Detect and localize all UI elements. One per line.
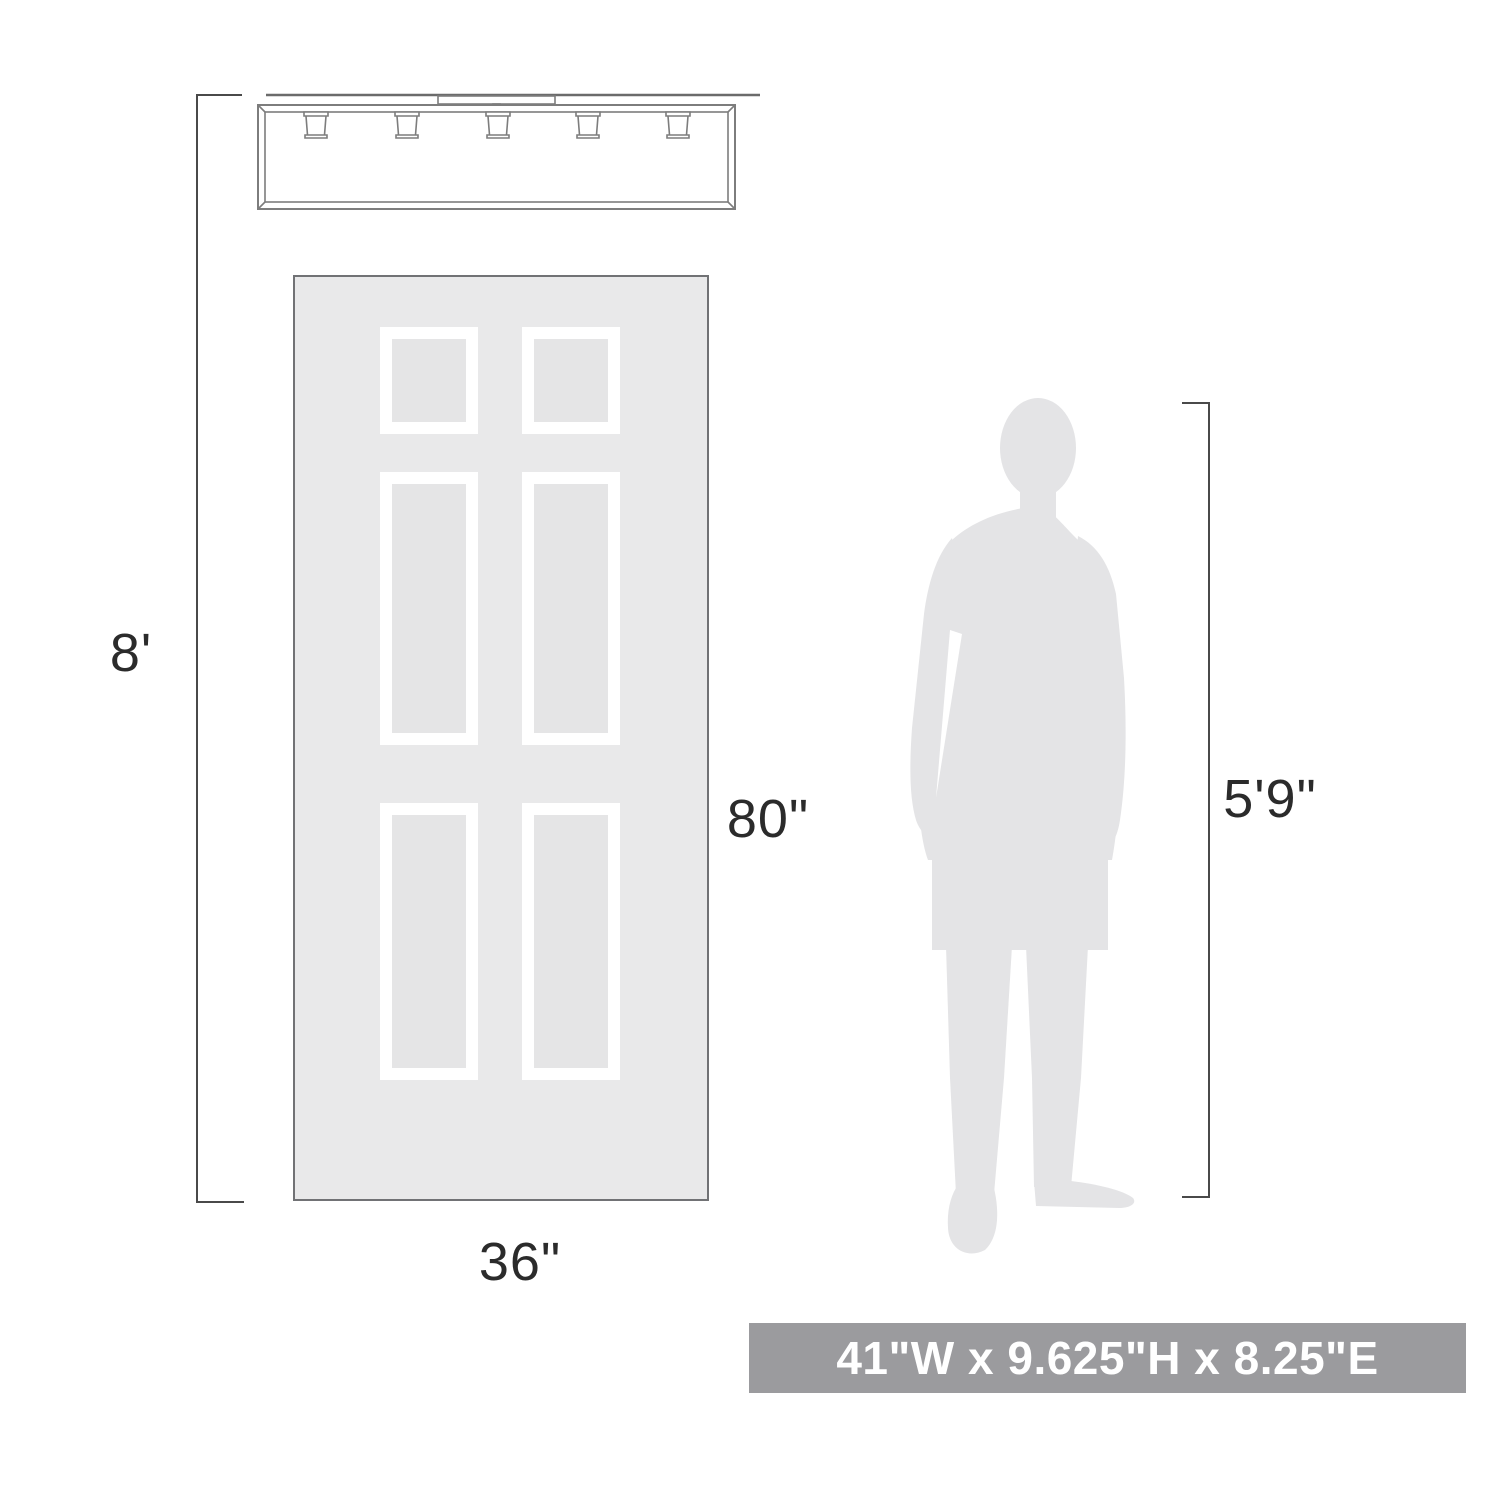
label-door-height: 80" (718, 788, 818, 850)
door-silhouette (293, 275, 709, 1201)
person-height-bottom-tick (1182, 1196, 1210, 1198)
fixture-socket (486, 112, 510, 138)
door-panel-inner (534, 815, 608, 1068)
door-panel (522, 327, 620, 434)
fixture-socket (395, 112, 419, 138)
ceiling-height-top-tick (196, 94, 242, 96)
fixture-canopy (438, 96, 555, 104)
light-fixture-drawing (190, 88, 770, 218)
person-height-top-tick (1182, 402, 1210, 404)
door-panel-inner (534, 484, 608, 733)
ceiling-height-bottom-tick (196, 1201, 244, 1203)
label-person-height: 5'9" (1200, 768, 1340, 830)
door-panel-inner (534, 339, 608, 422)
door-panel-inner (392, 815, 466, 1068)
person-silhouette (880, 398, 1150, 1260)
fixture-socket (304, 112, 328, 138)
door-panel (522, 803, 620, 1080)
label-ceiling-height: 8' (76, 622, 186, 684)
door-panel (380, 327, 478, 434)
fixture-socket (666, 112, 690, 138)
fixture-socket (576, 112, 600, 138)
door-panel (380, 472, 478, 745)
door-panel-inner (392, 339, 466, 422)
dimensions-diagram: 8' 80" 36" (0, 0, 1500, 1500)
door-panel (522, 472, 620, 745)
door-panel-inner (392, 484, 466, 733)
size-banner: 41"W x 9.625"H x 8.25"E (749, 1323, 1466, 1393)
label-door-width: 36" (460, 1231, 580, 1293)
person-head (1000, 398, 1076, 498)
ceiling-height-dimension-line (196, 95, 198, 1203)
door-panel (380, 803, 478, 1080)
